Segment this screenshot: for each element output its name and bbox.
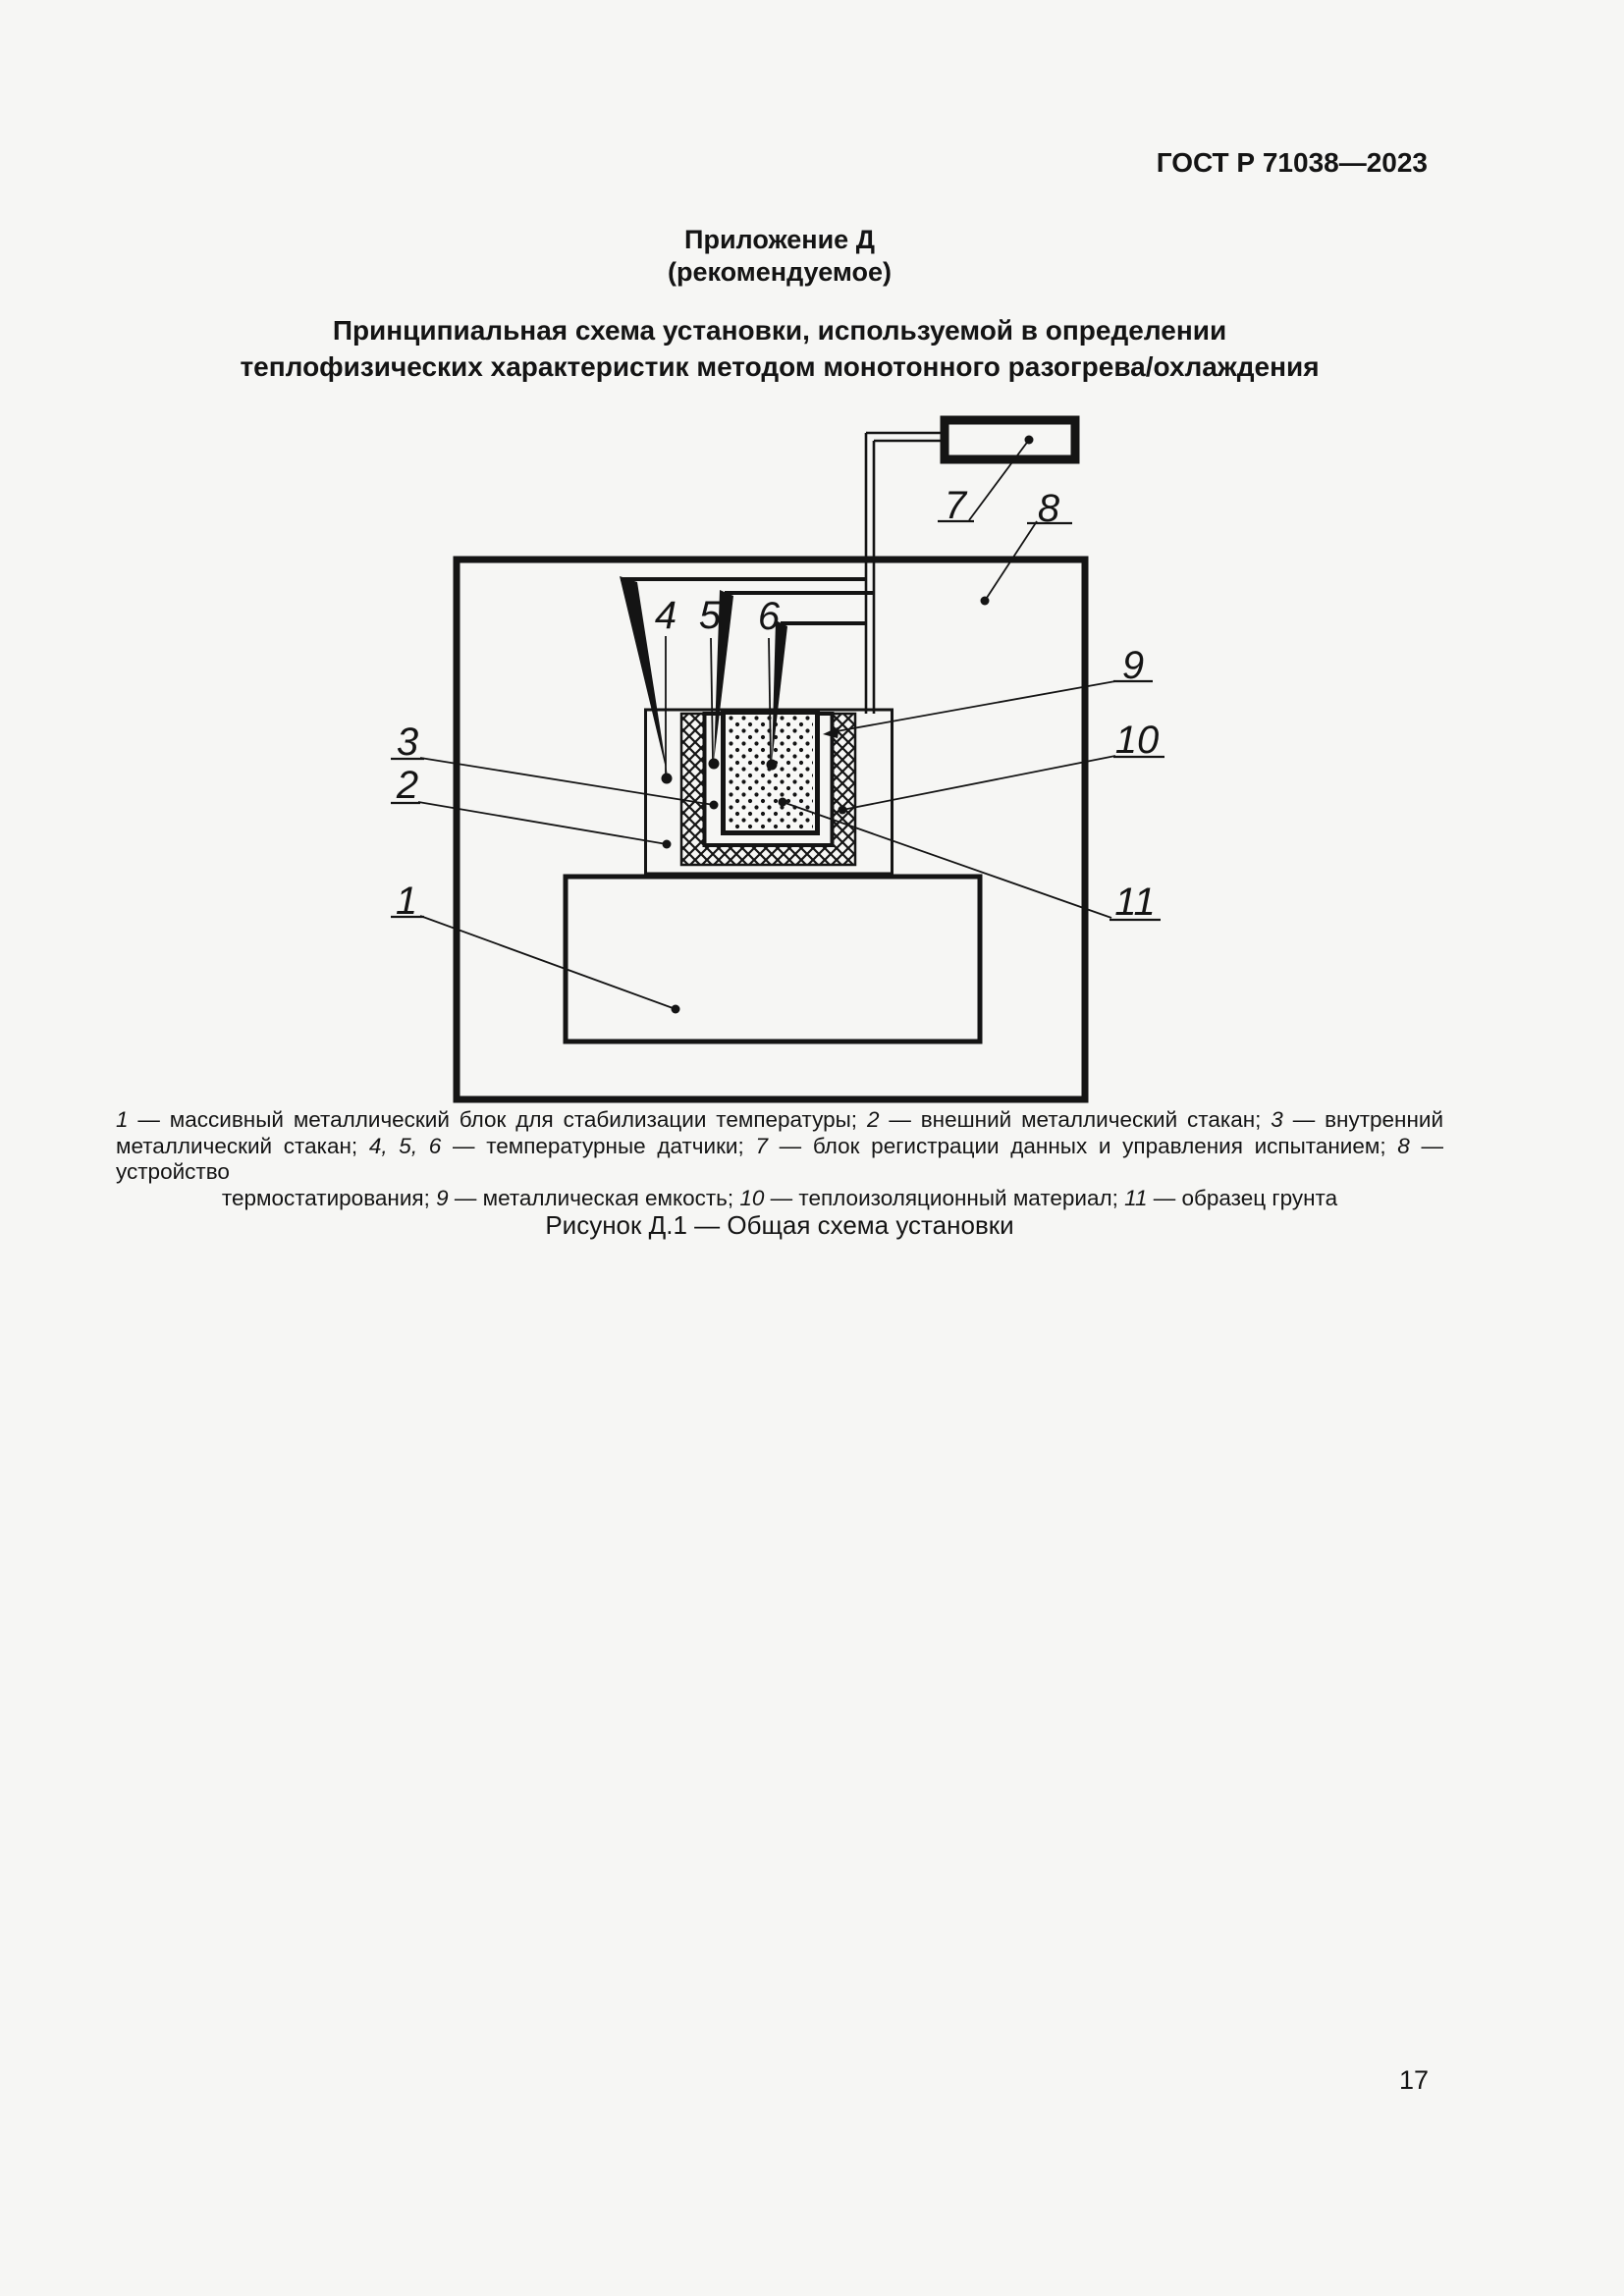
registration-block (945, 420, 1075, 459)
figure-title-line1: Принципиальная схема установки, использу… (116, 312, 1443, 348)
callout-7: 7 (945, 486, 966, 525)
sensor-4-tip (662, 774, 673, 784)
figure-title: Принципиальная схема установки, использу… (116, 312, 1443, 385)
installation-schematic: 1 2 3 4 5 6 7 8 9 10 11 (383, 393, 1198, 1119)
figure-legend: 1 — массивный металлический блок для ста… (116, 1107, 1443, 1211)
sensor-6-tip (767, 760, 778, 771)
callout-3: 3 (397, 722, 418, 762)
legend-line: металлический стакан; 4, 5, 6 — температ… (116, 1134, 1443, 1186)
callout-9: 9 (1122, 646, 1144, 685)
callout-10: 10 (1115, 721, 1160, 760)
figure-title-line2: теплофизических характеристик методом мо… (116, 348, 1443, 385)
callout-8: 8 (1038, 489, 1059, 528)
legend-line: термостатирования; 9 — металлическая емк… (116, 1186, 1443, 1212)
annex-heading: Приложение Д (рекомендуемое) (116, 224, 1443, 289)
document-page: { "page": { "header": "ГОСТ Р 71038—2023… (0, 0, 1624, 2296)
legend-line: 1 — массивный металлический блок для ста… (116, 1107, 1443, 1134)
callout-11: 11 (1114, 882, 1156, 922)
schematic-drawing (383, 393, 1198, 1119)
callout-5: 5 (699, 596, 721, 635)
signal-wires (866, 433, 941, 714)
figure-caption: Рисунок Д.1 — Общая схема установки (116, 1210, 1443, 1241)
page-number: 17 (1399, 2065, 1429, 2096)
annex-title: Приложение Д (116, 224, 1443, 256)
standard-designation: ГОСТ Р 71038—2023 (1157, 147, 1428, 179)
annex-subtitle: (рекомендуемое) (116, 256, 1443, 289)
sensor-5-tip (709, 759, 720, 770)
callout-1: 1 (396, 881, 417, 921)
callout-4: 4 (655, 596, 677, 635)
callout-6: 6 (758, 597, 780, 636)
callout-2: 2 (397, 766, 418, 805)
metal-block (566, 877, 980, 1041)
